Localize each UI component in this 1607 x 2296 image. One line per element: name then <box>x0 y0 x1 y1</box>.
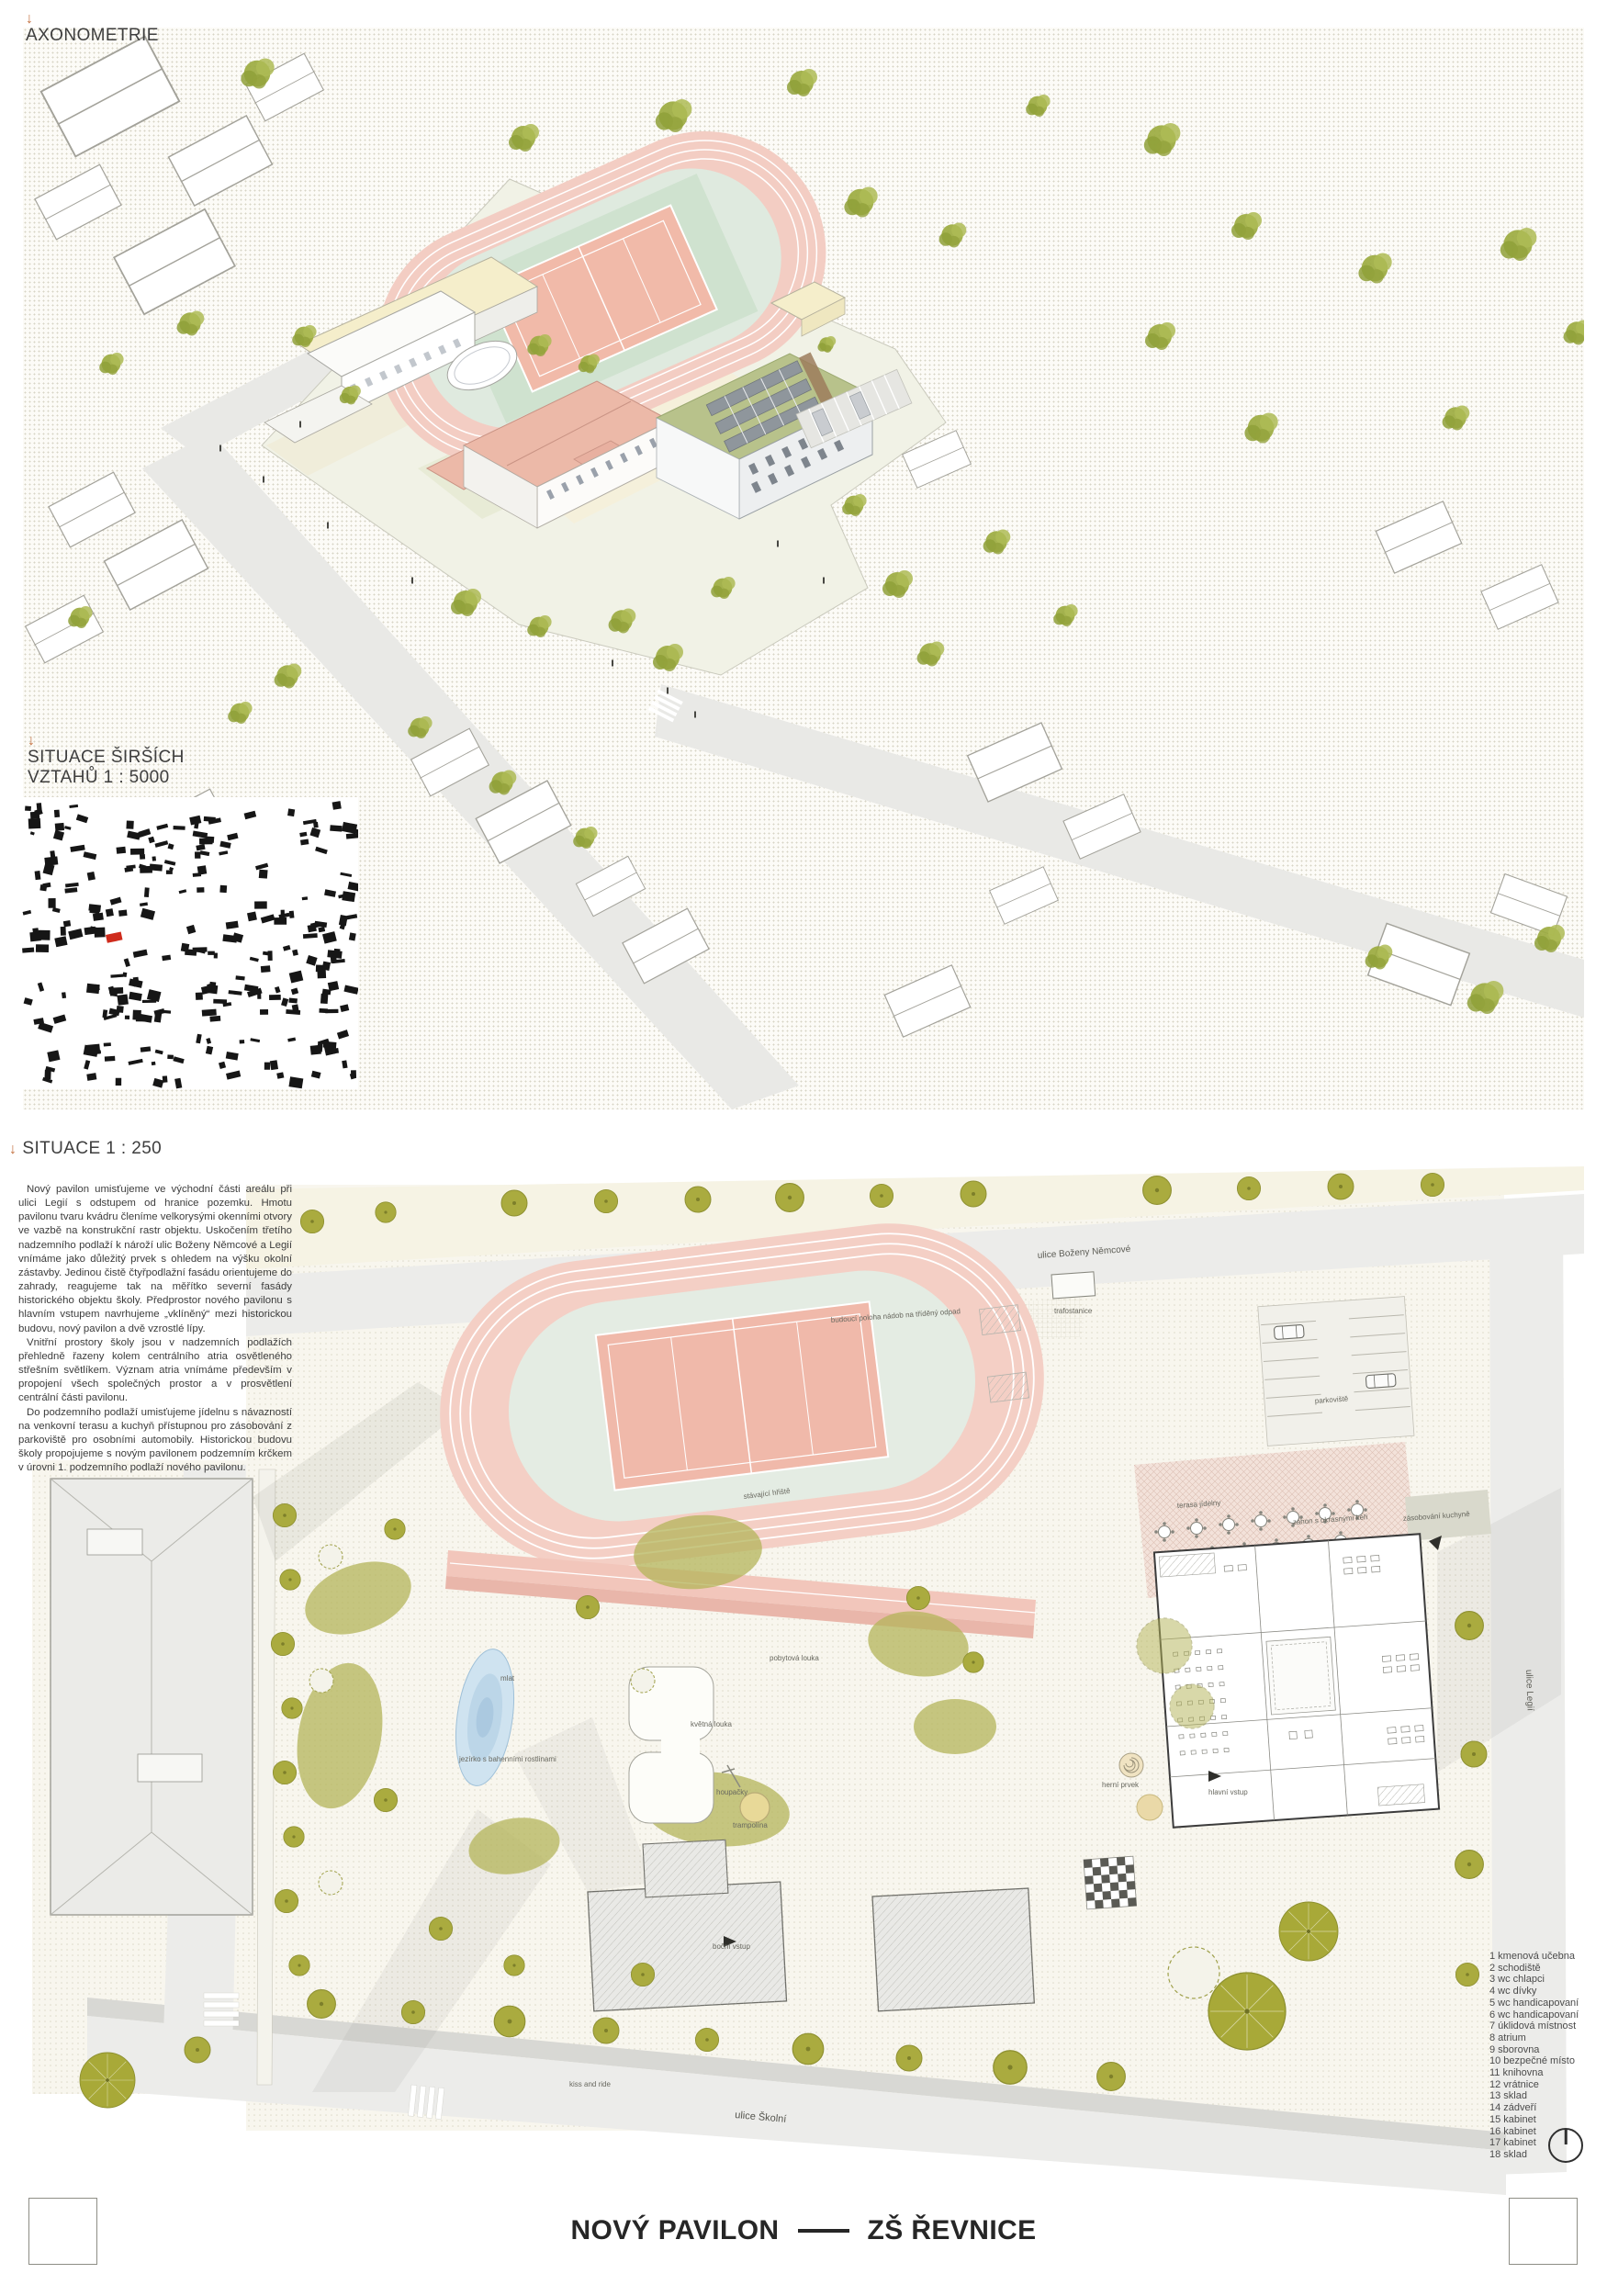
legend-item: 8 atrium <box>1489 2032 1579 2044</box>
axonometrie-label: ↓ AXONOMETRIE <box>26 13 159 46</box>
down-arrow-icon: ↓ <box>28 735 185 748</box>
label-trampoline: trampolína <box>733 1821 768 1829</box>
plan-existing-gym-building <box>51 1479 253 1915</box>
legend-item: 5 wc handicapovaní <box>1489 1998 1579 2009</box>
legend-item: 1 kmenová učebna <box>1489 1951 1579 1963</box>
label-flower-meadow: květná louka <box>691 1720 732 1728</box>
label-side-entrance: boční vstup <box>713 1942 750 1951</box>
plan-new-pavilion <box>1154 1534 1439 1827</box>
title-dash <box>798 2229 849 2233</box>
legend-item: 9 sborovna <box>1489 2044 1579 2056</box>
description-paragraph: Do podzemního podlaží umisťujeme jídelnu… <box>18 1406 292 1476</box>
down-arrow-icon: ↓ <box>26 13 159 26</box>
board-title: NOVÝ PAVILON ZŠ ŘEVNICE <box>0 2215 1607 2246</box>
legend-item: 6 wc handicapovaní <box>1489 2009 1579 2021</box>
figure-ground-map <box>18 797 358 1089</box>
legend-item: 14 zádveří <box>1489 2102 1579 2114</box>
legend-item: 12 vrátnice <box>1489 2079 1579 2091</box>
plan-checker-paving <box>1084 1856 1137 1909</box>
description-paragraph: Nový pavilon umisťujeme ve východní část… <box>18 1183 292 1336</box>
legend-item: 7 úklidová místnost <box>1489 2020 1579 2032</box>
presentation-board: ↓ AXONOMETRIE <box>0 0 1607 2296</box>
situace-sirsich-label: ↓ SITUACE ŠIRŠÍCH VZTAHŮ 1 : 5000 <box>28 735 185 788</box>
label-kiss-and-ride: kiss and ride <box>569 2080 611 2088</box>
plan-trafostanice-building <box>1051 1272 1096 1299</box>
description-paragraph: Vnitřní prostory školy jsou v nadzemních… <box>18 1336 292 1406</box>
label-trafostanice: trafostanice <box>1054 1307 1093 1315</box>
legend-item: 11 knihovna <box>1489 2067 1579 2079</box>
map-building-blocks <box>22 801 358 1088</box>
situace-label: ↓SITUACE 1 : 250 <box>9 1139 162 1159</box>
legend-item: 2 schodiště <box>1489 1963 1579 1975</box>
legend-item: 15 kabinet <box>1489 2114 1579 2126</box>
board-title-left: NOVÝ PAVILON <box>570 2215 779 2246</box>
down-arrow-icon: ↓ <box>9 1142 17 1157</box>
legend-item: 3 wc chlapci <box>1489 1974 1579 1986</box>
label-dwell-meadow: pobytová louka <box>770 1654 819 1662</box>
map-site-highlight <box>106 931 122 942</box>
plan-parking <box>1258 1297 1414 1446</box>
label-mlat: mlat <box>500 1674 515 1683</box>
label-pond: jezírko s bahenními rostlinami <box>458 1755 556 1763</box>
north-arrow-icon <box>1548 2128 1583 2163</box>
label-swings: houpačky <box>716 1788 747 1796</box>
label-main-entrance: hlavní vstup <box>1208 1788 1248 1796</box>
legend-item: 4 wc dívky <box>1489 1986 1579 1998</box>
legend-item: 10 bezpečné místo <box>1489 2055 1579 2067</box>
project-description: Nový pavilon umisťujeme ve východní část… <box>18 1183 292 1475</box>
label-street-right: ulice Legií <box>1523 1670 1535 1712</box>
board-title-right: ZŠ ŘEVNICE <box>868 2215 1037 2246</box>
label-play-element: herní prvek <box>1102 1781 1140 1789</box>
legend-item: 13 sklad <box>1489 2090 1579 2102</box>
